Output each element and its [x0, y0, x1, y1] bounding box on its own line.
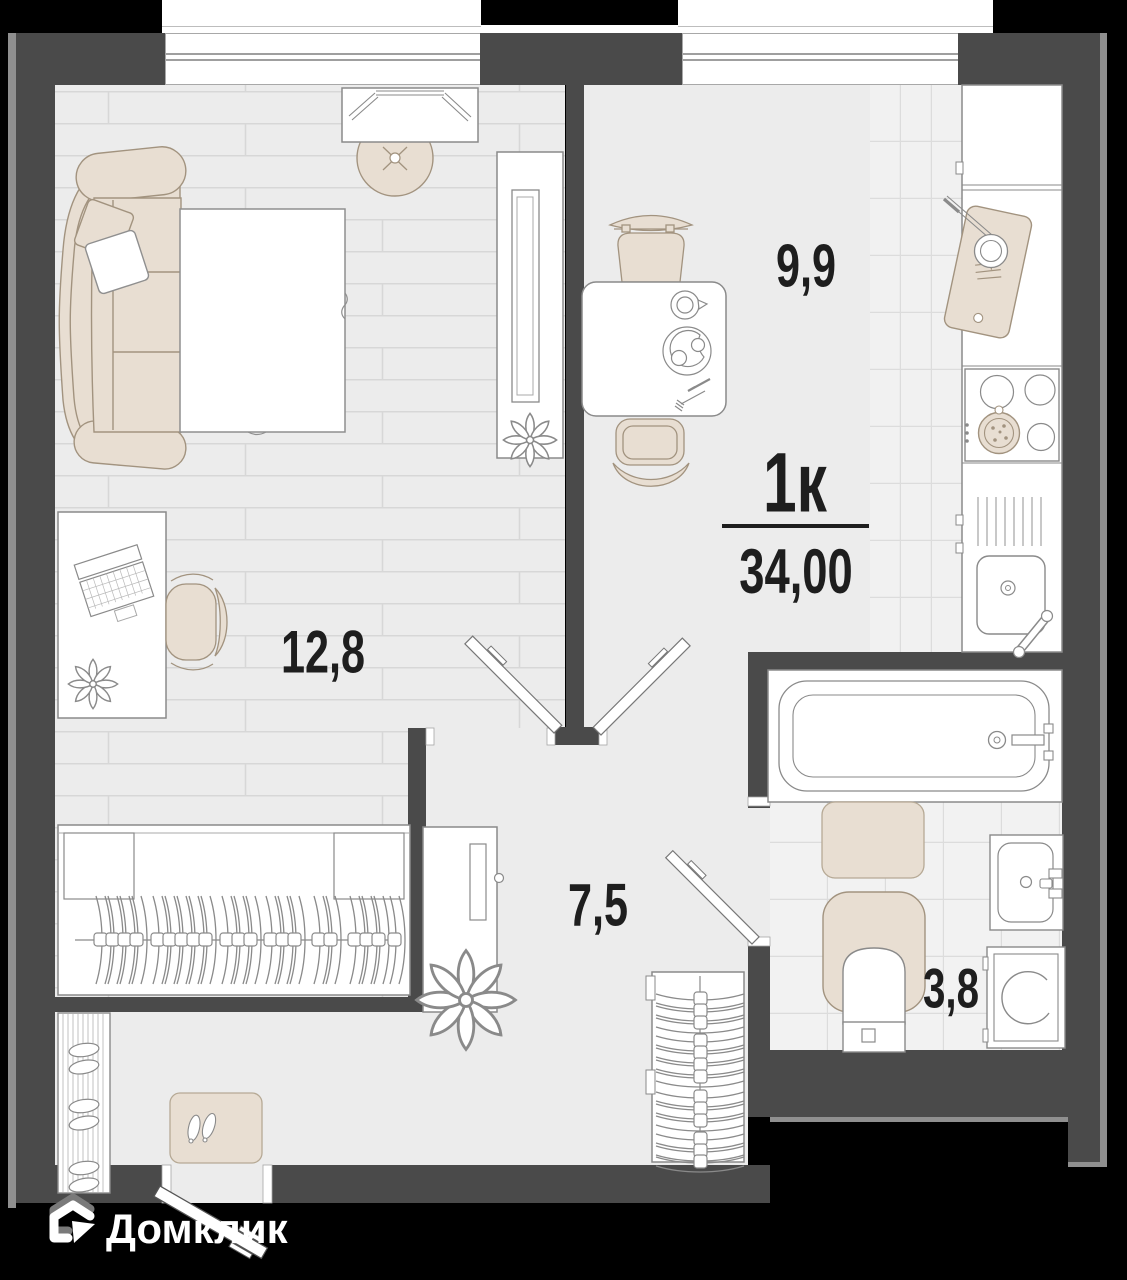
wardrobe — [58, 825, 410, 995]
dining-chair — [610, 216, 692, 283]
bathroom-area-label: 3,8 — [923, 956, 979, 1021]
domclick-logo: Домклик — [54, 1198, 289, 1252]
wall-bottom-center — [272, 1165, 770, 1203]
flush-button — [862, 1029, 875, 1042]
wall-bottom-right — [748, 1050, 1100, 1117]
wall-right-stub — [1068, 1117, 1100, 1167]
wall-living-kitchen — [566, 85, 584, 727]
living-area-label: 12,8 — [281, 618, 365, 687]
plant-icon — [68, 659, 117, 708]
bathroom-sink — [990, 835, 1063, 930]
logo-text: Домклик — [106, 1205, 289, 1252]
wall-bathroom-left-lower — [748, 940, 770, 1050]
wall-right — [1062, 33, 1100, 1117]
wall-top-middle — [480, 33, 682, 85]
wall-stub-doorways — [555, 727, 599, 745]
stove — [965, 369, 1059, 461]
plant-icon — [503, 413, 556, 466]
wall-bathroom-left-upper — [748, 655, 770, 808]
tv-console — [497, 152, 563, 458]
bath-mat — [822, 802, 924, 878]
entry-mat — [170, 1093, 262, 1163]
summary-divider — [722, 524, 869, 528]
dressing-table — [342, 88, 478, 142]
tv — [512, 190, 539, 402]
cabinet-knob — [495, 874, 504, 883]
shoe-rack — [58, 1013, 110, 1194]
bathtub — [768, 670, 1062, 802]
dining-table — [582, 282, 726, 416]
entry-corridor-floor — [55, 1012, 748, 1165]
plate — [663, 327, 711, 375]
kitchen-area-label: 9,9 — [776, 232, 836, 301]
floor-plan-image: Домклик 9,9 12,8 7,5 3,8 1к 34,00 — [0, 0, 1127, 1280]
wall-left — [16, 33, 55, 1203]
hallway-area-label: 7,5 — [568, 871, 628, 940]
washing-machine — [983, 947, 1065, 1048]
bed — [180, 209, 347, 435]
coat-rack — [646, 972, 744, 1172]
tub-faucet-icon — [1012, 735, 1044, 745]
plant-icon — [417, 951, 516, 1050]
sofa — [59, 144, 188, 470]
bathroom-doorway-floor — [748, 806, 770, 942]
total-area-label: 34,00 — [739, 536, 853, 608]
kitchen-tile-strip — [870, 85, 962, 652]
rooms-count-label: 1к — [763, 435, 827, 532]
wall-living-corridor — [55, 997, 426, 1012]
bowl — [975, 235, 1008, 268]
